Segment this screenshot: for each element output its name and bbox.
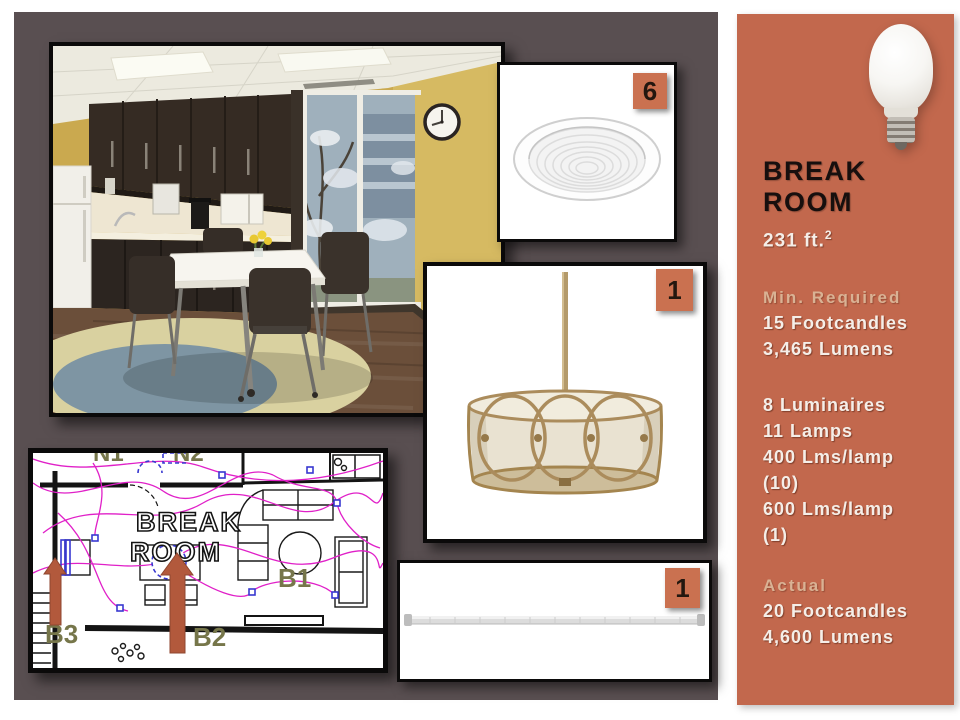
plan-room-label-line1: BREAK	[136, 507, 242, 537]
fixture-line: (10)	[763, 470, 938, 496]
fixture-line: 8 Luminaires	[763, 392, 938, 418]
fixture-line: 11 Lamps	[763, 418, 938, 444]
fixture-line: 400 Lms/lamp	[763, 444, 938, 470]
min-required-line: 3,465 Lumens	[763, 336, 938, 362]
quantity-badge: 1	[656, 269, 693, 311]
actual-line: 4,600 Lumens	[763, 624, 938, 650]
floorplan-image: BREAK ROOM B1 B2 B3 N1 N2	[33, 453, 383, 668]
min-required-line: 15 Footcandles	[763, 310, 938, 336]
paper-towel-dispenser	[153, 184, 179, 214]
plan-label-b1: B1	[278, 563, 311, 593]
actual-heading: Actual	[763, 574, 938, 598]
microwave	[221, 194, 263, 224]
product-card-pendant: 1	[423, 262, 707, 543]
coffee-maker	[189, 198, 211, 229]
bulb-glass	[869, 24, 933, 112]
min-required-heading: Min. Required	[763, 286, 938, 310]
slide-canvas: BREAK ROOM B1 B2 B3 N1 N2	[0, 0, 960, 720]
chair-far	[203, 228, 243, 254]
quantity-badge: 1	[665, 568, 700, 608]
room-area-superscript: 2	[825, 228, 833, 242]
product-card-linear-tube: 1	[397, 560, 712, 682]
tube-endcap-right	[697, 614, 705, 626]
plan-label-partial-2: N2	[173, 453, 204, 467]
plan-label-b2: B2	[193, 622, 226, 652]
sidebar: BREAK ROOM 231 ft.2 Min. Required 15 Foo…	[737, 14, 954, 705]
room-title: BREAK ROOM	[763, 156, 938, 218]
actual-line: 20 Footcandles	[763, 598, 938, 624]
room-area: 231 ft.2	[763, 222, 938, 254]
bulb-tip	[895, 142, 907, 150]
wall-dispenser	[105, 178, 115, 194]
led-bulb-icon	[866, 24, 938, 156]
linear-tube-image	[400, 563, 709, 679]
tube-endcap-left	[404, 614, 412, 626]
wall-clock-icon	[425, 105, 459, 139]
plan-label-partial-1: N1	[93, 453, 124, 467]
bulb-screw-base	[887, 117, 915, 143]
room-title-line1: BREAK	[763, 156, 938, 187]
room-area-value: 231 ft.	[763, 230, 825, 251]
room-title-line2: ROOM	[763, 187, 938, 218]
refrigerator	[53, 166, 91, 308]
fixture-line: (1)	[763, 522, 938, 548]
floorplan-card: BREAK ROOM B1 B2 B3 N1 N2	[28, 448, 388, 673]
pendant-finial	[559, 478, 571, 486]
quantity-badge: 6	[633, 73, 667, 109]
fixture-line: 600 Lms/lamp	[763, 496, 938, 522]
product-card-recessed: 6	[497, 62, 677, 242]
pendant-drum	[469, 391, 662, 493]
